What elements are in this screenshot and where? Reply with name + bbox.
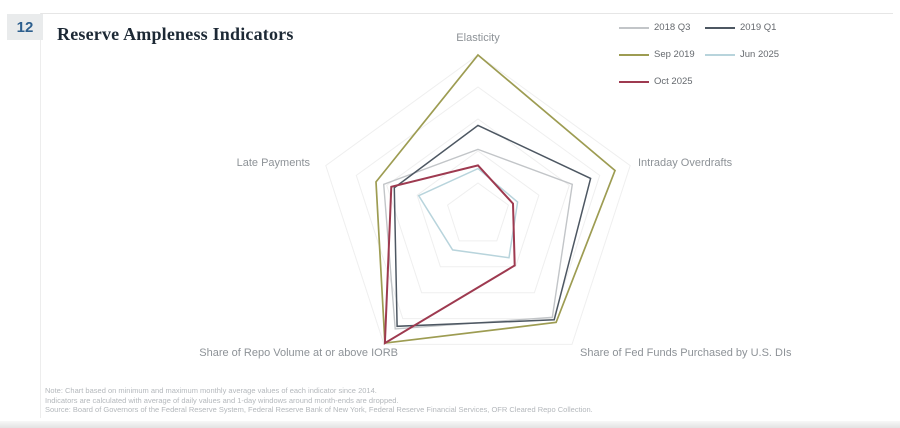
page-title: Reserve Ampleness Indicators [57, 24, 294, 45]
legend-label-jun-2025: Jun 2025 [740, 49, 779, 60]
legend-swatch-2018-q3 [619, 27, 649, 29]
grid-ring-1 [448, 183, 509, 241]
legend-label-2018-q3: 2018 Q3 [654, 22, 690, 33]
legend-item-2018-q3: 2018 Q3 [619, 22, 705, 33]
page-root: 12 Reserve Ampleness Indicators Elastici… [0, 0, 900, 428]
chart-legend: 2018 Q3 2019 Q1 Sep 2019 Jun 2025 Oct 20… [619, 22, 779, 87]
series-sep-2019 [376, 55, 615, 343]
axis-label-intraday-overdrafts: Intraday Overdrafts [638, 157, 732, 169]
axis-label-elasticity: Elasticity [456, 32, 499, 44]
legend-label-2019-q1: 2019 Q1 [740, 22, 776, 33]
legend-swatch-oct-2025 [619, 81, 649, 83]
legend-label-sep-2019: Sep 2019 [654, 49, 695, 60]
legend-swatch-2019-q1 [705, 27, 735, 29]
legend-item-2019-q1: 2019 Q1 [705, 22, 779, 33]
series-2018-q3 [384, 149, 573, 329]
footnote-method: Indicators are calculated with average o… [45, 396, 593, 406]
footnote-source: Source: Board of Governors of the Federa… [45, 405, 593, 415]
footnote-note: Note: Chart based on minimum and maximum… [45, 386, 593, 396]
page-number-badge: 12 [7, 14, 43, 40]
legend-item-oct-2025: Oct 2025 [619, 76, 705, 87]
series-oct-2025 [385, 165, 515, 343]
legend-item-jun-2025: Jun 2025 [705, 49, 779, 60]
legend-swatch-jun-2025 [705, 54, 735, 56]
legend-item-sep-2019: Sep 2019 [619, 49, 705, 60]
axis-label-fed-funds: Share of Fed Funds Purchased by U.S. DIs [580, 347, 792, 359]
legend-label-oct-2025: Oct 2025 [654, 76, 693, 87]
legend-swatch-sep-2019 [619, 54, 649, 56]
axis-label-late-payments: Late Payments [237, 157, 310, 169]
series-2019-q1 [394, 125, 590, 326]
footnotes: Note: Chart based on minimum and maximum… [45, 386, 593, 415]
axis-label-repo-volume: Share of Repo Volume at or above IORB [199, 347, 398, 359]
